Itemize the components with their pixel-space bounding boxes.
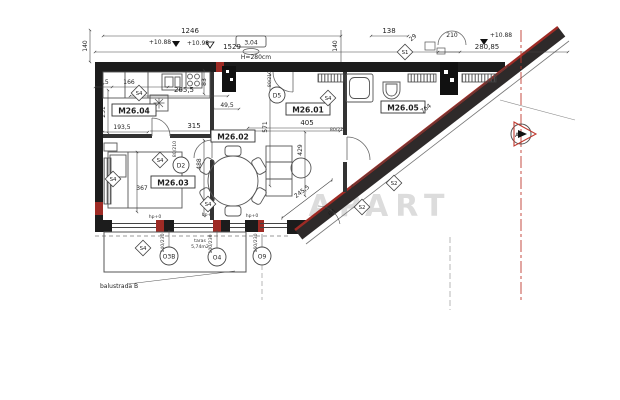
door-size-bath: 80/210 <box>330 127 346 133</box>
pier-red <box>156 220 164 232</box>
balustrade-leader <box>128 271 235 284</box>
dim-1246: 1246 <box>181 27 199 35</box>
door-size-d2: 80/210 <box>172 141 178 157</box>
floor-plan-page: APART <box>0 0 620 400</box>
room-label-living: M26.02 <box>217 133 249 142</box>
marker-s2: S2 <box>391 181 398 187</box>
door-tag-d2: D2 <box>177 163 186 170</box>
wall-accent <box>95 202 103 215</box>
room-label-bath: M26.05 <box>387 104 419 113</box>
level-1098: +10.98 <box>187 40 209 47</box>
shower <box>346 74 373 102</box>
window-o4: O4 <box>213 255 222 262</box>
dim-488: 488 <box>196 158 203 170</box>
marker-s4: S4 <box>136 91 143 97</box>
room-label-bedroom: M26.03 <box>157 179 189 188</box>
floor-plan-canvas: APART <box>0 0 620 400</box>
room-label-kitchen: M26.04 <box>118 107 150 116</box>
dim-571: 571 <box>262 121 269 133</box>
dim-1935: 193,5 <box>113 124 130 131</box>
side-table <box>291 158 311 178</box>
pier <box>245 220 260 232</box>
dim-h280: H=280cm <box>241 54 271 61</box>
level-1088: +10.88 <box>149 39 171 46</box>
dim-29: 29 <box>408 33 418 43</box>
sill-level: hp+0 <box>246 213 259 219</box>
window-size-o3b: 140/230 <box>160 233 166 252</box>
door-size-d5: 80/210 <box>267 71 273 87</box>
terrace-area: 5,74m2 <box>191 244 209 250</box>
window-o9: O9 <box>258 254 267 261</box>
balcony <box>95 230 450 310</box>
balustrade-label: balustrada B <box>100 283 138 290</box>
dim-1529: 1529 <box>223 43 241 51</box>
sill-level: hp+0 <box>202 212 215 218</box>
dim-140: 140 <box>82 40 89 52</box>
dim-495: 49,5 <box>220 102 234 109</box>
level-1088b: +10.88 <box>490 32 512 39</box>
marker-s4: S4 <box>140 246 147 252</box>
dim-315: 315 <box>187 122 200 130</box>
pier <box>95 220 112 232</box>
dim-166: 166 <box>123 79 135 86</box>
dim-138: 138 <box>382 27 395 35</box>
marker-s1: S1 <box>402 50 409 56</box>
dim-231: 231 <box>100 106 107 118</box>
dim-304: 3,04 <box>244 40 258 47</box>
room-label-hall: M26.01 <box>292 106 324 115</box>
leader-line <box>500 100 575 120</box>
marker-s4: S4 <box>205 202 212 208</box>
dim-2655: 265,5 <box>174 86 194 94</box>
dim-28085: 280,85 <box>475 43 500 51</box>
pier <box>221 220 230 232</box>
dim-367: 367 <box>136 185 148 192</box>
marker-s4: S4 <box>325 96 332 102</box>
window-o3b: O3B <box>163 254 176 261</box>
dim-140b: 140 <box>332 40 339 52</box>
terrace-name: taras <box>194 238 206 244</box>
window-size-o4: 100/230 <box>208 234 214 253</box>
dim-210: 210 <box>446 32 458 39</box>
marker-s4: S4 <box>157 158 164 164</box>
dim-405: 405 <box>300 119 313 127</box>
dim-275: 27,5 <box>95 79 109 86</box>
door-tag-d5: D5 <box>273 93 282 100</box>
marker-s2: S2 <box>359 205 366 211</box>
sill-level: hp+0 <box>149 214 162 220</box>
kitchen-counter <box>103 72 210 98</box>
dim-429: 429 <box>297 144 304 156</box>
level-markers <box>172 39 488 48</box>
dim-83: 83 <box>201 78 208 86</box>
marker-s4: S4 <box>110 177 117 183</box>
nightstand <box>104 143 117 151</box>
pier-red <box>258 220 264 232</box>
window-size-o9: 160/230 <box>253 233 259 252</box>
dining-table <box>208 156 258 206</box>
